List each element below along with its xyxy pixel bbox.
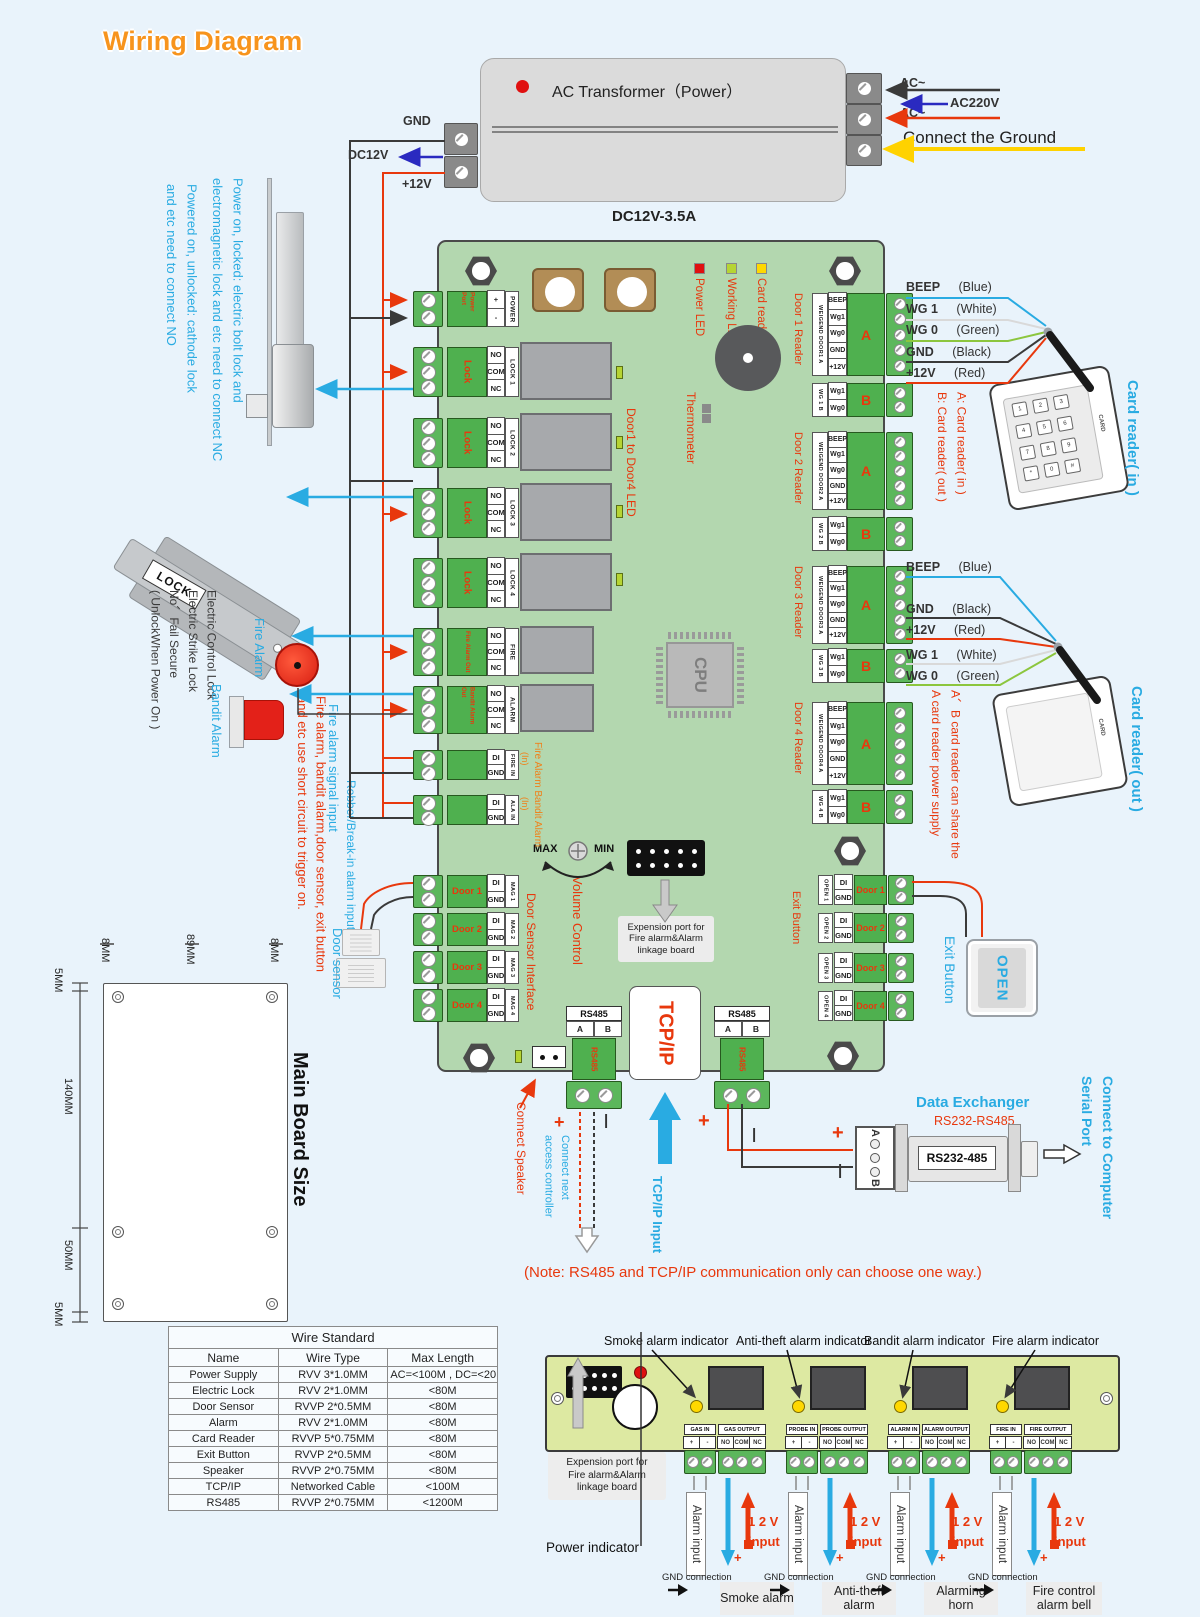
screw-icon xyxy=(894,769,906,781)
comm-note: (Note: RS485 and TCP/IP communication on… xyxy=(524,1264,982,1281)
reader4-a-pins: BEEPWg1Wg0GND+12V xyxy=(828,702,847,785)
mount-hole-icon xyxy=(266,991,278,1003)
exchanger-ab-connector: A B xyxy=(855,1126,895,1190)
ac220v-label: AC220V xyxy=(950,95,999,110)
reader3-b-block: B xyxy=(847,649,885,683)
screw-icon xyxy=(838,1456,850,1468)
screw-icon xyxy=(1007,1456,1019,1468)
volume-min-label: MIN xyxy=(594,843,614,855)
door1-tag: MAG 1 xyxy=(505,875,519,908)
screw-icon xyxy=(421,521,436,536)
fire-alarm-label: Fire Alarm xyxy=(252,618,267,677)
screw-icon xyxy=(701,1456,713,1468)
indicator-label: Fire alarm indicator xyxy=(992,1334,1099,1348)
screw-icon xyxy=(421,591,436,606)
fire-out-block: Fire Alarm Out xyxy=(447,628,487,676)
channel-in-label: ALARM IN xyxy=(888,1424,920,1435)
screw-icon xyxy=(853,1456,865,1468)
screw-icon xyxy=(891,1456,903,1468)
channel-out-pins: NOCOMNC xyxy=(1024,1436,1072,1449)
screw-icon xyxy=(895,969,907,981)
screw-icon xyxy=(894,614,906,626)
pin-icon xyxy=(582,1386,587,1391)
screw-icon xyxy=(894,535,906,547)
open4-pins: DIGND xyxy=(834,991,853,1021)
screw-terminal-open1 xyxy=(888,875,914,905)
mount-hole-icon xyxy=(1100,1392,1113,1405)
keypad-key: 5 xyxy=(1036,419,1053,435)
mount-hole-icon xyxy=(551,1392,564,1405)
keypad-key: * xyxy=(1023,465,1040,481)
screw-icon xyxy=(421,349,436,364)
exit-button-board-label: Exit Button xyxy=(790,891,802,944)
wiring-diagram-page: Wiring Diagram AC Transformer（Power） GND… xyxy=(0,0,1200,1617)
reader1-a-block: A xyxy=(847,293,885,376)
v12-input-label: input xyxy=(748,1534,780,1549)
channel-out-screws xyxy=(1024,1450,1072,1474)
rs485-block: RS485 xyxy=(572,1038,616,1080)
screw-icon xyxy=(895,915,907,927)
keypad-key: 2 xyxy=(1032,398,1049,414)
screw-icon xyxy=(895,993,907,1005)
thermometer-icon xyxy=(702,404,711,413)
relay-button xyxy=(604,268,656,312)
pin-icon xyxy=(612,1386,617,1391)
screw-icon xyxy=(894,313,906,325)
rs485-block: RS485 xyxy=(720,1038,764,1080)
screw-terminal-power xyxy=(413,291,443,327)
reader3-a-pins: BEEPWg1Wg0GND+12V xyxy=(828,566,847,644)
maglock-body xyxy=(272,344,314,428)
ac-label: AC~ xyxy=(900,106,925,120)
card-led-icon xyxy=(756,263,767,274)
screw-terminal-reader4b xyxy=(886,790,913,824)
reader2-a-pins: BEEPWg1Wg0GND+12V xyxy=(828,432,847,510)
channel-in-pins: +- xyxy=(888,1436,920,1449)
screw-icon xyxy=(751,1456,763,1468)
door2-tag: MAG 2 xyxy=(505,913,519,946)
pin-icon xyxy=(636,863,641,868)
relay-button xyxy=(532,268,584,312)
relay xyxy=(520,684,594,732)
screw-icon xyxy=(421,560,436,575)
channel-led-icon xyxy=(996,1400,1009,1413)
reader2-wire-label: WG 1 (White) xyxy=(906,646,997,664)
door3-tag: MAG 3 xyxy=(505,951,519,984)
lock4-block: Lock xyxy=(447,558,487,608)
screw-icon xyxy=(421,687,436,702)
transformer-terminal xyxy=(846,73,882,104)
power-led-icon xyxy=(694,263,705,274)
screw-icon xyxy=(421,629,436,644)
reader4-b-pins: Wg1Wg0 xyxy=(828,790,847,824)
door-led-icon xyxy=(616,505,623,518)
channel-relay xyxy=(810,1366,866,1410)
relay xyxy=(520,342,612,400)
v12-input-label: input xyxy=(1054,1534,1086,1549)
keypad-key: 1 xyxy=(1011,401,1028,417)
screw-icon xyxy=(1057,1456,1069,1468)
screw-icon xyxy=(894,494,906,506)
ala-in-note: (In) xyxy=(520,797,530,811)
reader2-b-pins: Wg1Wg0 xyxy=(828,517,847,551)
nc-lock-note: Power on, locked: electric bolt lock and… xyxy=(206,178,248,461)
screw-icon xyxy=(895,955,907,967)
indicator-label: Bandit alarm indicator xyxy=(864,1334,985,1348)
screw-icon xyxy=(894,480,906,492)
speaker-connector xyxy=(532,1046,566,1068)
channel-out-pins: NOCOMNC xyxy=(718,1436,766,1449)
screw-icon xyxy=(894,753,906,765)
channel-relay xyxy=(1014,1366,1070,1410)
reader3-b-pins: Wg1Wg0 xyxy=(828,649,847,683)
table-row: SpeakerRVVP 2*0.75MM<80M xyxy=(169,1463,498,1479)
gnd-label: GND xyxy=(403,114,431,128)
door4-pins: DIGND xyxy=(487,989,505,1022)
screw-icon xyxy=(421,576,436,591)
cpu-label: CPU xyxy=(690,657,710,693)
reader1-a-tag: WEIGEND DOOR1 A xyxy=(812,293,828,376)
screw-icon xyxy=(687,1456,699,1468)
table-row: Door SensorRVVP 2*0.5MM<80M xyxy=(169,1399,498,1415)
screw-terminal-rs485 xyxy=(714,1081,770,1109)
screw-icon xyxy=(421,766,436,781)
ab-reader-note: A: Card reader( in )B: Card reader( out … xyxy=(932,392,970,502)
lock3-block: Lock xyxy=(447,488,487,538)
transformer-label: AC Transformer（Power） xyxy=(552,78,742,102)
transformer-terminal xyxy=(444,156,478,188)
exchanger-db9 xyxy=(1021,1141,1038,1177)
power-led-label: Power LED xyxy=(693,278,705,336)
rs485-ab: AB xyxy=(566,1022,622,1037)
working-led-icon xyxy=(726,263,737,274)
screw-icon xyxy=(421,990,436,1005)
mount-hole-icon xyxy=(266,1298,278,1310)
screw-icon xyxy=(1028,1456,1040,1468)
trigger-note: Fire alarm, bandit alarm,door sensor, ex… xyxy=(292,696,330,972)
keypad-key: # xyxy=(1064,458,1081,474)
alarm-input-box: Alarm input xyxy=(890,1492,910,1576)
keypad-key: 3 xyxy=(1053,394,1070,410)
screw-icon xyxy=(421,968,436,983)
lock3-tag: LOCK 3 xyxy=(505,488,519,538)
screw-terminal-reader2a xyxy=(886,432,913,510)
ala-in-pins: DIGND xyxy=(487,795,505,825)
minus-mark: | xyxy=(604,1112,608,1129)
channel-in-pins: +- xyxy=(786,1436,818,1449)
dim-label: 50MM xyxy=(62,1240,74,1271)
connect-computer-note: Connect to ComputerSerial Port xyxy=(1076,1076,1118,1219)
pin-icon xyxy=(592,1373,597,1378)
screw-icon xyxy=(895,877,907,889)
device-label: Smoke alarm xyxy=(720,1582,794,1615)
screw-icon xyxy=(894,628,906,640)
relay xyxy=(520,626,594,674)
screw-terminal-lock3 xyxy=(413,488,443,538)
screw-icon xyxy=(421,436,436,451)
dim-label: 8MM xyxy=(99,938,111,962)
power-port-block: Power Port xyxy=(447,291,487,327)
table-row: Card ReaderRVVP 5*0.75MM<80M xyxy=(169,1431,498,1447)
reader3-a-tag: WEIGEND DOOR3 A xyxy=(812,566,828,644)
door-sensor-interface-label: Door Sensor Interface xyxy=(524,893,538,1010)
screw-icon xyxy=(421,751,436,766)
fire-bandit-in-label: Fire Alarm Bandit Alarm xyxy=(532,742,543,847)
screw-icon xyxy=(421,1006,436,1021)
pin-icon xyxy=(636,849,641,854)
door3-block: Door 3 xyxy=(447,951,487,984)
keypad-key: 7 xyxy=(1019,444,1036,460)
lock2-pins: NOCOMNC xyxy=(487,418,505,468)
screw-terminal-rs485 xyxy=(566,1081,622,1109)
pin-icon xyxy=(602,1386,607,1391)
door1-block: Door 1 xyxy=(447,875,487,908)
screw-icon xyxy=(454,165,469,180)
bandit-out-pins: NOCOMNC xyxy=(487,686,505,734)
plus-mark: + xyxy=(554,1112,565,1133)
reader-share-note: A、B card reader can share theA card read… xyxy=(926,690,964,859)
rs485-title: RS485 xyxy=(566,1006,622,1021)
screw-icon xyxy=(894,465,906,477)
lock2-block: Lock xyxy=(447,418,487,468)
screw-icon xyxy=(421,876,436,891)
mount-hole-icon xyxy=(266,1226,278,1238)
screw-icon xyxy=(894,599,906,611)
open3-block: Door 3 xyxy=(854,953,887,983)
screw-terminal-reader2b xyxy=(886,517,913,551)
tcpip-port: TCP/IP xyxy=(629,986,701,1080)
channel-in-screws xyxy=(888,1450,920,1474)
screw-icon xyxy=(857,112,872,127)
cpu-pins xyxy=(668,711,732,718)
keypad-key: 8 xyxy=(1040,440,1057,456)
screw-icon xyxy=(824,1456,836,1468)
transformer-terminal xyxy=(846,135,882,166)
card-reader-out: CARD xyxy=(991,674,1129,807)
maglock-armature xyxy=(276,212,304,348)
buzzer-icon xyxy=(715,325,781,391)
exchanger-label: RS232-485 xyxy=(918,1146,996,1170)
device-label: Alarming horn xyxy=(924,1582,998,1615)
connect-speaker-label: Connect Speaker xyxy=(514,1102,528,1195)
screw-icon xyxy=(895,1007,907,1019)
open1-tag: OPEN 1 xyxy=(818,875,833,905)
channel-out-label: ALARM OUTPUT xyxy=(922,1424,970,1435)
pin-icon xyxy=(664,863,669,868)
screw-icon xyxy=(421,451,436,466)
no-lock-note: Powered on, unlocked: cathode lockand et… xyxy=(160,184,202,393)
channel-in-pins: +- xyxy=(990,1436,1022,1449)
pin-icon xyxy=(572,1373,577,1378)
bandit-out-block: Bandit Alarm Out xyxy=(447,686,487,734)
keypad-key: 0 xyxy=(1043,462,1060,478)
pin-icon xyxy=(678,863,683,868)
cpu-pins xyxy=(737,646,744,704)
door3-pins: DIGND xyxy=(487,951,505,984)
screw-terminal-lock4 xyxy=(413,558,443,608)
screw-icon xyxy=(870,1153,880,1163)
status-led-icon xyxy=(515,1050,522,1063)
device-label: Fire control alarm bell xyxy=(1026,1582,1102,1615)
open4-tag: OPEN 4 xyxy=(818,991,833,1021)
pin-icon xyxy=(602,1373,607,1378)
plus-mark: + xyxy=(1040,1550,1048,1565)
screw-terminal-lock1 xyxy=(413,347,443,397)
door-led-icon xyxy=(616,366,623,379)
v12-label: 1 2 V xyxy=(952,1514,982,1529)
plus-mark: + xyxy=(836,1550,844,1565)
dc12v-label: DC12V xyxy=(348,148,388,162)
table-row: Power SupplyRVV 3*1.0MMAC=<100M , DC=<20… xyxy=(169,1367,498,1383)
alarm-input-box: Alarm input xyxy=(686,1492,706,1576)
card-reader-in: 123 456 789 *0# CARD xyxy=(988,364,1130,511)
door-sensor-device xyxy=(342,929,380,956)
screw-terminal-banditout xyxy=(413,686,443,734)
door-led-label: Door1 to Door4 LED xyxy=(624,408,638,517)
screw-icon xyxy=(421,952,436,967)
dim-label: 5MM xyxy=(52,1302,64,1326)
lock4-pins: NOCOMNC xyxy=(487,558,505,608)
pin-icon xyxy=(664,849,669,854)
channel-out-label: GAS OUTPUT xyxy=(718,1424,766,1435)
lock3-pins: NOCOMNC xyxy=(487,488,505,538)
lock1-tag: LOCK 1 xyxy=(505,347,519,397)
screw-icon xyxy=(421,718,436,733)
lock4-tag: LOCK 4 xyxy=(505,558,519,608)
minus-mark: | xyxy=(752,1126,756,1143)
screw-terminal-alain xyxy=(413,795,443,825)
screw-icon xyxy=(894,738,906,750)
screw-icon xyxy=(894,584,906,596)
table-row: RS485RVVP 2*0.75MM<1200M xyxy=(169,1495,498,1511)
door2-pins: DIGND xyxy=(487,913,505,946)
open1-pins: DIGND xyxy=(834,875,853,905)
screw-icon xyxy=(421,420,436,435)
table-title: Wire Standard xyxy=(169,1327,498,1349)
screw-icon xyxy=(723,1088,738,1103)
reader4-b-tag: WG 4 B xyxy=(812,790,828,824)
exchanger-flange xyxy=(1008,1124,1021,1192)
channel-in-screws xyxy=(990,1450,1022,1474)
col-header: Name xyxy=(169,1349,279,1367)
reader2-b-tag: WG 2 B xyxy=(812,517,828,551)
fire-in-block xyxy=(447,750,487,780)
v12-input-label: input xyxy=(850,1534,882,1549)
screw-icon xyxy=(870,1139,880,1149)
screw-icon xyxy=(722,1456,734,1468)
door2-block: Door 2 xyxy=(447,913,487,946)
alarm-input-box: Alarm input xyxy=(788,1492,808,1576)
reader4-a-block: A xyxy=(847,702,885,785)
screw-icon xyxy=(894,521,906,533)
reader1-b-tag: WG 1 B xyxy=(812,383,828,417)
open2-block: Door 2 xyxy=(854,913,887,943)
reader2-wire-label: BEEP (Blue) xyxy=(906,558,992,576)
reader4-b-block: B xyxy=(847,790,885,824)
expansion-port xyxy=(627,840,705,876)
channel-out-label: PROBE OUTPUT xyxy=(820,1424,868,1435)
table-row: Exit ButtonRVVP 2*0.5MM<80M xyxy=(169,1447,498,1463)
door2-reader-label: Door 2 Reader xyxy=(792,432,804,504)
fire-in-pins: DIGND xyxy=(487,750,505,780)
screw-icon xyxy=(894,298,906,310)
screw-icon xyxy=(955,1456,967,1468)
transformer-terminal xyxy=(444,123,478,155)
pin-icon xyxy=(612,1373,617,1378)
col-header: Wire Type xyxy=(278,1349,388,1367)
screw-terminal-door3 xyxy=(413,951,443,984)
pin-icon xyxy=(582,1373,587,1378)
minus-mark: | xyxy=(838,1162,842,1179)
mount-hole-icon xyxy=(112,1226,124,1238)
linkage-power-led-icon xyxy=(634,1366,647,1379)
table-row: TCP/IPNetworked Cable<100M xyxy=(169,1479,498,1495)
ground-label: Connect the Ground xyxy=(903,128,1056,148)
screw-icon xyxy=(894,707,906,719)
pin-icon xyxy=(572,1386,577,1391)
open3-tag: OPEN 3 xyxy=(818,953,833,983)
door1-pins: DIGND xyxy=(487,875,505,908)
channel-led-icon xyxy=(690,1400,703,1413)
power-pins: +- xyxy=(487,291,505,327)
power-indicator-label: Power indicator xyxy=(546,1540,639,1555)
channel-out-pins: NOCOMNC xyxy=(922,1436,970,1449)
reader2-a-tag: WEIGEND DOOR2 A xyxy=(812,432,828,510)
screw-terminal-reader1b xyxy=(886,383,913,417)
channel-relay xyxy=(708,1366,764,1410)
col-header: Max Length xyxy=(388,1349,498,1367)
door-led-icon xyxy=(616,573,623,586)
screw-icon xyxy=(421,506,436,521)
fire-out-tag: FIRE xyxy=(505,628,519,676)
keypad-key: 4 xyxy=(1015,423,1032,439)
open3-pins: DIGND xyxy=(834,953,853,983)
alarm-input-box: Alarm input xyxy=(992,1492,1012,1576)
screw-icon xyxy=(421,930,436,945)
mount-hole-icon xyxy=(112,1298,124,1310)
reader2-wire-label: GND (Black) xyxy=(906,600,991,618)
p12v-label: +12V xyxy=(402,177,432,191)
screw-terminal-open2 xyxy=(888,913,914,943)
fire-out-pins: NOCOMNC xyxy=(487,628,505,676)
screw-icon xyxy=(926,1456,938,1468)
bandit-out-tag: ALARM xyxy=(505,686,519,734)
screw-icon xyxy=(421,380,436,395)
mount-hole-icon xyxy=(112,991,124,1003)
screw-terminal-lock2 xyxy=(413,418,443,468)
channel-in-screws xyxy=(786,1450,818,1474)
channel-in-pins: +- xyxy=(684,1436,716,1449)
screw-icon xyxy=(993,1456,1005,1468)
channel-out-screws xyxy=(922,1450,970,1474)
open1-block: Door 1 xyxy=(854,875,887,905)
reader2-wire-label: WG 0 (Green) xyxy=(906,667,999,685)
reader4-a-tag: WEIGEND DOOR4 A xyxy=(812,702,828,785)
channel-in-label: FIRE IN xyxy=(990,1424,1022,1435)
screw-terminal-firein xyxy=(413,750,443,780)
screw-icon xyxy=(421,365,436,380)
screw-icon xyxy=(421,645,436,660)
fire-in-note: (In) xyxy=(520,752,530,766)
dim-label: 5MM xyxy=(52,968,64,992)
screw-icon xyxy=(736,1456,748,1468)
screw-icon xyxy=(421,660,436,675)
plus-mark: + xyxy=(832,1122,844,1145)
screw-icon xyxy=(895,929,907,941)
screw-terminal-door2 xyxy=(413,913,443,946)
screw-icon xyxy=(894,653,906,665)
ala-in-block xyxy=(447,795,487,825)
